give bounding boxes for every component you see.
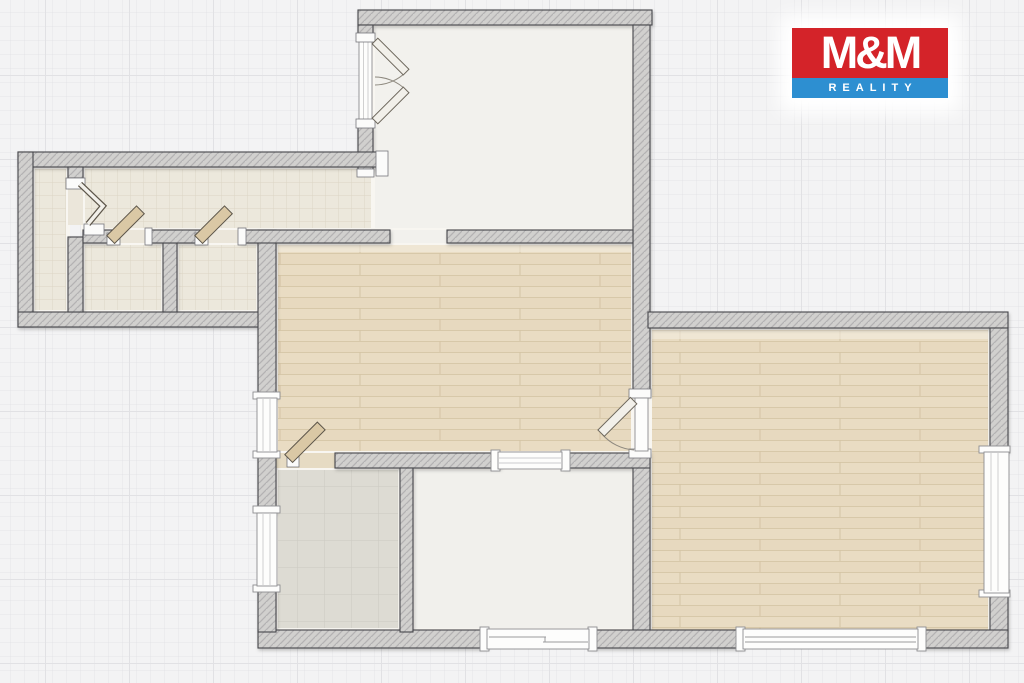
wall — [18, 312, 276, 327]
room-bath-floor — [177, 243, 258, 312]
wall — [335, 453, 500, 468]
french-door-window — [359, 41, 372, 121]
bottom-door-window — [480, 627, 597, 651]
room-closet-floor — [33, 167, 68, 312]
window-right — [979, 446, 1010, 597]
room-white-floor — [413, 468, 633, 630]
interior-window — [491, 450, 570, 471]
wall — [163, 243, 177, 312]
wall — [633, 25, 650, 395]
logo-top-band: M&M — [792, 28, 948, 78]
wall — [68, 167, 83, 178]
logo-reality-text: REALITY — [822, 82, 917, 94]
room-top-floor — [373, 25, 633, 230]
wall — [990, 328, 1008, 452]
wall — [258, 586, 276, 632]
floor-plan — [0, 0, 1024, 683]
wall — [258, 452, 276, 513]
logo-bottom-band: REALITY — [790, 78, 950, 100]
wall — [68, 237, 83, 312]
room-wc-floor — [83, 243, 163, 312]
wall — [648, 312, 1008, 328]
brand-logo: M&M REALITY — [792, 28, 948, 100]
wall — [358, 10, 652, 25]
wall — [400, 468, 413, 632]
wall — [990, 593, 1008, 632]
window-left-lower — [253, 506, 280, 592]
wall — [258, 630, 487, 648]
floor-plan-page: M&M REALITY — [0, 0, 1024, 683]
wall — [18, 152, 33, 327]
wall — [920, 630, 1008, 648]
wall — [447, 230, 633, 243]
wall — [240, 230, 390, 243]
room-tiled-floor — [276, 468, 400, 630]
wall — [18, 152, 378, 167]
window-left-small — [253, 392, 280, 458]
room-right-floor — [650, 328, 990, 632]
wall — [633, 452, 650, 632]
room-living-floor — [276, 243, 633, 453]
bottom-window — [736, 627, 926, 651]
wall — [258, 230, 276, 398]
logo-mm-text: M&M — [821, 30, 919, 76]
wall — [590, 630, 743, 648]
